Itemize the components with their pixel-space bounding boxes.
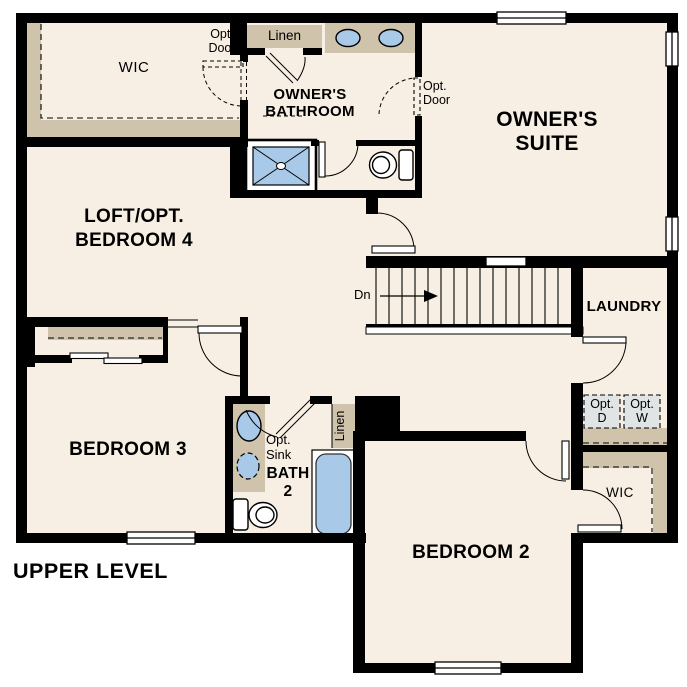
opt-washer-line1: Opt. (624, 397, 660, 411)
window-icon (435, 662, 501, 674)
owners-bathroom-line1: OWNER'S (248, 87, 372, 104)
opt-door-suite-line2: Door (423, 93, 450, 107)
room-label-bath2: BATH 2 (263, 465, 313, 501)
floor-plan: WIC Opt. Door Linen OWNER'S BATHROOM Opt… (0, 0, 687, 687)
closet-label-linen-owner: Linen (247, 28, 322, 44)
room-label-laundry: LAUNDRY (578, 298, 670, 315)
stairs-down-text: Dn (354, 287, 371, 302)
owners-toilet-icon (370, 150, 414, 180)
loft-line2: BEDROOM 4 (40, 229, 228, 253)
opt-door-wic-line1: Opt. (200, 27, 244, 41)
bath2-line1: BATH (263, 465, 313, 483)
annotation-stairs-down: Dn (354, 288, 371, 303)
opt-door-suite-line1: Opt. (423, 79, 450, 93)
shower-icon (246, 140, 316, 192)
bedroom2-text: BEDROOM 2 (379, 542, 563, 564)
room-label-wic-bedroom2: WIC (595, 485, 645, 501)
linen-bath2-text: Linen (333, 404, 347, 448)
window-icon (127, 532, 195, 544)
plan-title: UPPER LEVEL (13, 559, 168, 584)
room-label-bedroom2: BEDROOM 2 (379, 542, 563, 564)
opt-sink-line1: Opt. (266, 433, 291, 448)
annotation-opt-sink: Opt. Sink (266, 433, 291, 463)
bathtub-icon (312, 450, 355, 538)
annotation-opt-dryer: Opt. D (584, 397, 620, 425)
window-icon (666, 32, 678, 66)
owners-suite-line2: SUITE (467, 132, 627, 156)
owners-bathroom-line2: BATHROOM (248, 104, 372, 121)
linen-owner-text: Linen (247, 28, 322, 44)
opt-door-wic-line2: Door (200, 41, 244, 55)
staircase (366, 268, 583, 334)
annotation-opt-washer: Opt. W (624, 397, 660, 425)
stair-wall-niche (486, 257, 526, 266)
opt-sink-line2: Sink (266, 448, 291, 463)
wic-owner-text: WIC (100, 59, 168, 76)
opt-dryer-line1: Opt. (584, 397, 620, 411)
laundry-text: LAUNDRY (578, 298, 670, 315)
bath2-line2: 2 (263, 483, 313, 501)
room-label-loft: LOFT/OPT. BEDROOM 4 (40, 205, 228, 253)
plan-title-text: UPPER LEVEL (13, 559, 168, 583)
opt-washer-line2: W (624, 411, 660, 425)
room-label-owners-suite: OWNER'S SUITE (467, 108, 627, 156)
owners-suite-line1: OWNER'S (467, 108, 627, 132)
annotation-opt-door-suite: Opt. Door (423, 79, 450, 107)
closet-label-linen-bath2: Linen (333, 404, 355, 448)
room-label-wic-owner: WIC (100, 59, 168, 76)
bedroom3-text: BEDROOM 3 (36, 439, 220, 461)
opt-dryer-line2: D (584, 411, 620, 425)
room-label-bedroom3: BEDROOM 3 (36, 439, 220, 461)
loft-line1: LOFT/OPT. (40, 205, 228, 229)
window-icon (666, 217, 678, 251)
annotation-opt-door-wic: Opt. Door (200, 27, 244, 55)
window-icon (497, 12, 566, 24)
wic-bedroom2-text: WIC (595, 485, 645, 501)
room-label-owners-bathroom: OWNER'S BATHROOM (248, 87, 372, 121)
